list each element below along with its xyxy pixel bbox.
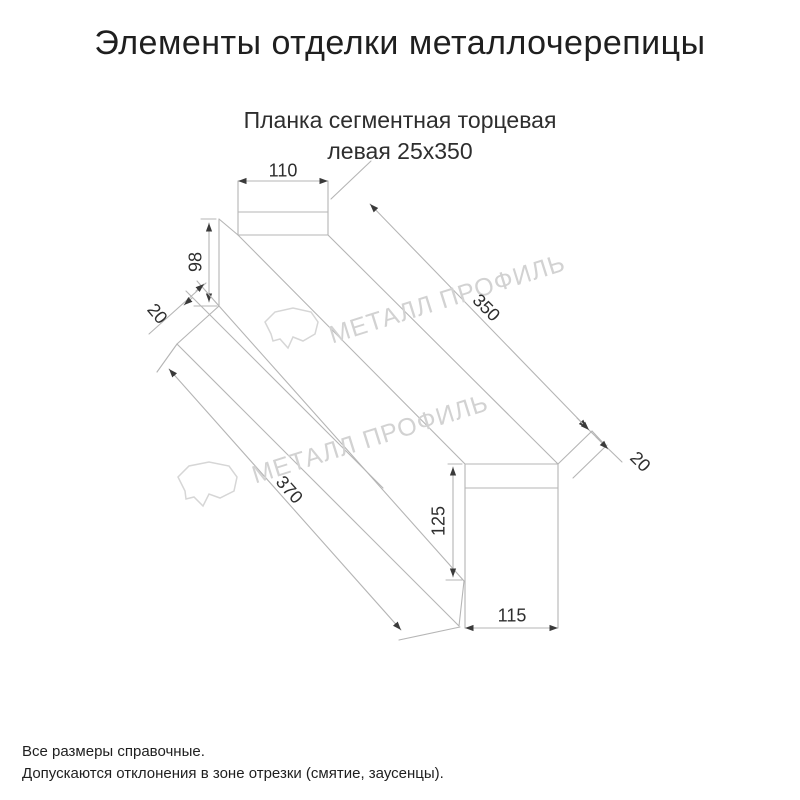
footnote-line2: Допускаются отклонения в зоне отрезки (с… bbox=[22, 763, 722, 785]
dim-98-label: 98 bbox=[186, 252, 207, 272]
dim-115-label: 115 bbox=[498, 606, 527, 627]
footnotes: Все размеры справочные. Допускаются откл… bbox=[22, 741, 722, 785]
profile-outline bbox=[149, 161, 622, 640]
cloud-logo-icon bbox=[178, 462, 237, 506]
footnote-line1: Все размеры справочные. bbox=[22, 741, 722, 763]
dim-110-label: 110 bbox=[269, 161, 298, 182]
technical-drawing bbox=[0, 0, 800, 800]
dim-125-label: 125 bbox=[429, 506, 450, 536]
cloud-logo-icon bbox=[265, 308, 318, 348]
